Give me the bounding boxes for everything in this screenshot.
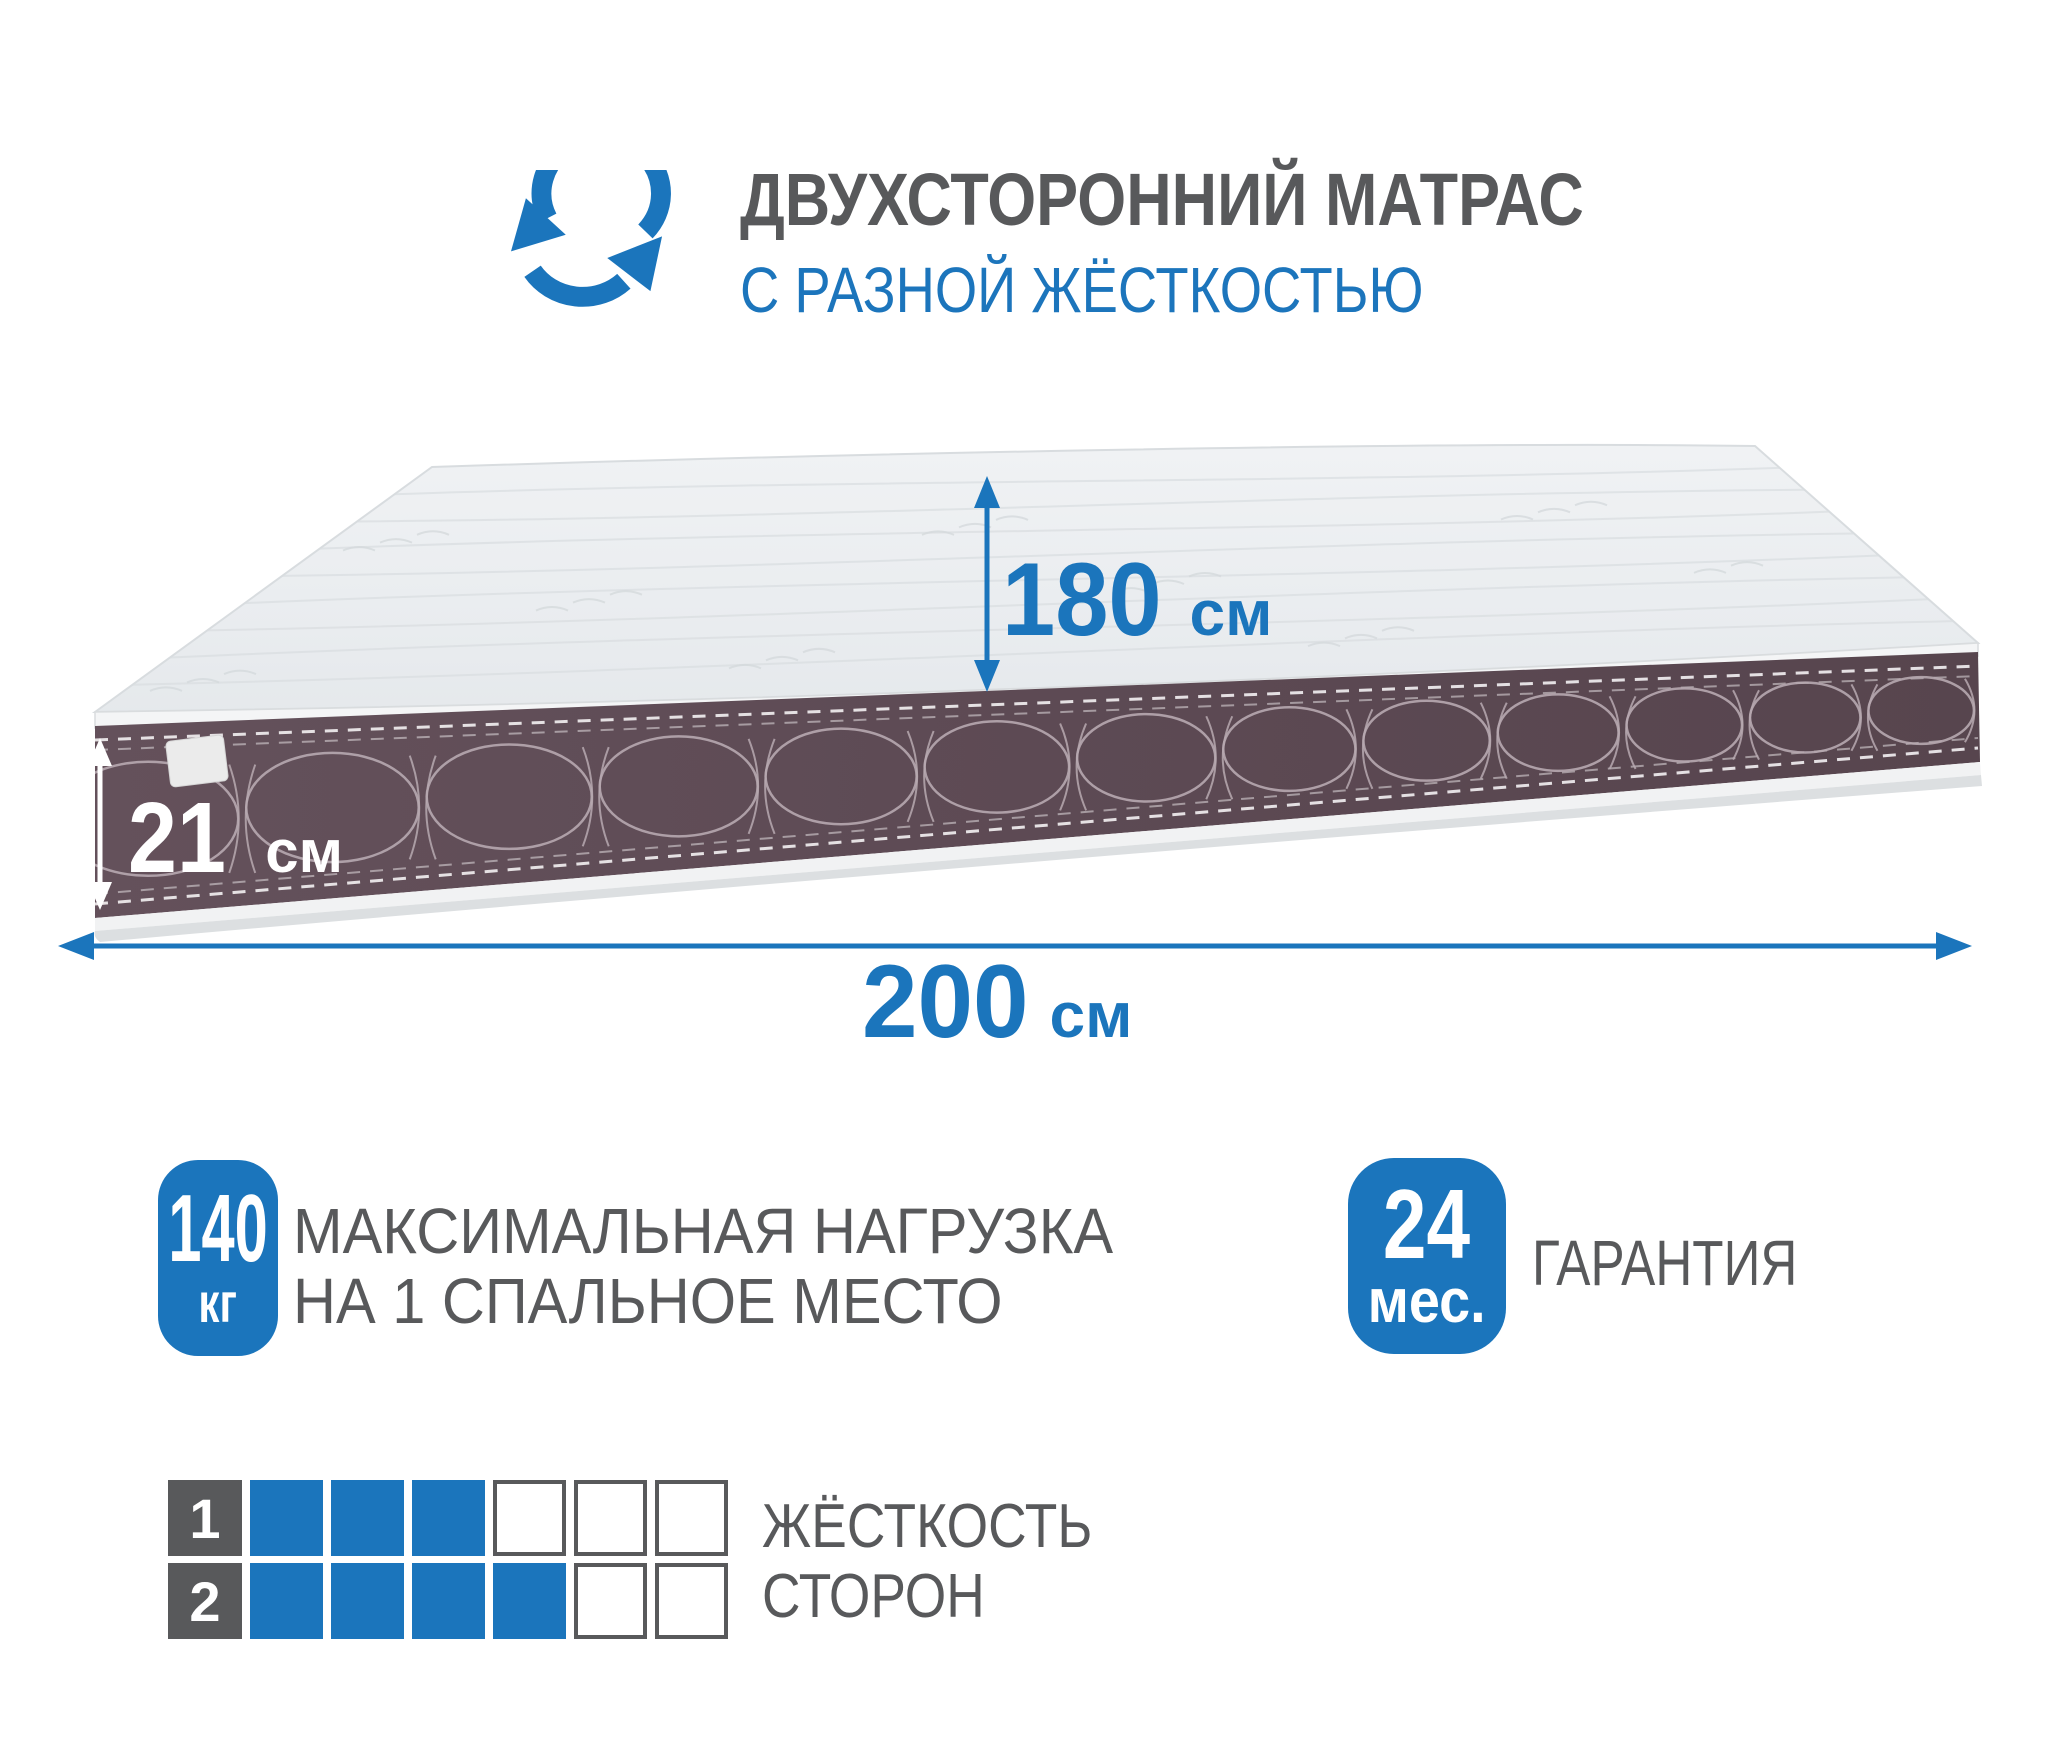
firmness-label: ЖЁСТКОСТЬ СТОРОН bbox=[762, 1492, 1146, 1632]
length-dimension-label: 200 см bbox=[862, 950, 1132, 1054]
width-value: 180 bbox=[1002, 548, 1162, 652]
max-load-value: 140 bbox=[168, 1185, 267, 1273]
warranty-label: ГАРАНТИЯ bbox=[1532, 1228, 1864, 1298]
firmness-row: 2 bbox=[168, 1563, 736, 1639]
firmness-cell-empty bbox=[574, 1563, 647, 1639]
firmness-cell-filled bbox=[250, 1563, 323, 1639]
length-value: 200 bbox=[862, 950, 1029, 1054]
firmness-label-line1: ЖЁСТКОСТЬ bbox=[762, 1492, 1092, 1562]
firmness-cell-filled bbox=[412, 1563, 485, 1639]
firmness-side-number: 1 bbox=[168, 1480, 242, 1556]
max-load-label-line1: МАКСИМАЛЬНАЯ НАГРУЗКА bbox=[293, 1196, 1113, 1266]
firmness-cell-filled bbox=[493, 1563, 566, 1639]
firmness-cell-filled bbox=[331, 1480, 404, 1556]
warranty-badge: 24 мес. bbox=[1348, 1158, 1506, 1354]
length-unit: см bbox=[1050, 983, 1133, 1047]
width-unit: см bbox=[1190, 581, 1273, 645]
thickness-unit: см bbox=[265, 822, 343, 882]
max-load-label: МАКСИМАЛЬНАЯ НАГРУЗКА НА 1 СПАЛЬНОЕ МЕСТ… bbox=[293, 1196, 1175, 1336]
mattress-infographic: ДВУХСТОРОННИЙ МАТРАС С РАЗНОЙ ЖЁСТКОСТЬЮ bbox=[0, 0, 2048, 1757]
warranty-value: 24 bbox=[1383, 1179, 1470, 1269]
firmness-side-number: 2 bbox=[168, 1563, 242, 1639]
firmness-label-line2: СТОРОН bbox=[762, 1562, 985, 1632]
max-load-label-line2: НА 1 СПАЛЬНОЕ МЕСТО bbox=[293, 1266, 1003, 1336]
firmness-cell-empty bbox=[493, 1480, 566, 1556]
firmness-cell-empty bbox=[574, 1480, 647, 1556]
firmness-cell-filled bbox=[412, 1480, 485, 1556]
firmness-cell-empty bbox=[655, 1563, 728, 1639]
warranty-unit: мес. bbox=[1368, 1271, 1486, 1333]
thickness-value: 21 bbox=[128, 788, 226, 888]
firmness-cell-filled bbox=[250, 1480, 323, 1556]
max-load-badge: 140 кг bbox=[158, 1160, 278, 1356]
warranty-label-text: ГАРАНТИЯ bbox=[1532, 1228, 1797, 1298]
firmness-cell-empty bbox=[655, 1480, 728, 1556]
firmness-scale: 12 bbox=[168, 1480, 736, 1646]
thickness-dimension-label: 21 см bbox=[128, 788, 343, 888]
width-dimension-label: 180 см bbox=[1002, 548, 1272, 652]
mattress-label-tag bbox=[165, 735, 228, 788]
max-load-unit: кг bbox=[199, 1275, 238, 1331]
firmness-cell-filled bbox=[331, 1563, 404, 1639]
firmness-row: 1 bbox=[168, 1480, 736, 1556]
